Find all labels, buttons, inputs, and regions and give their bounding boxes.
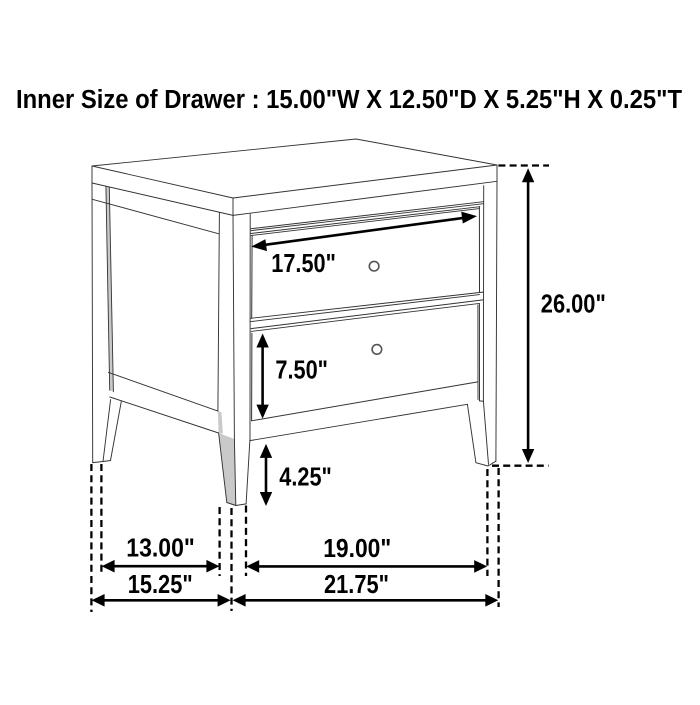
svg-text:4.25": 4.25" <box>279 464 332 492</box>
svg-text:26.00": 26.00" <box>541 291 606 319</box>
svg-text:7.50": 7.50" <box>275 357 328 385</box>
svg-text:13.00": 13.00" <box>126 534 195 562</box>
svg-text:21.75": 21.75" <box>324 571 389 599</box>
svg-text:19.00": 19.00" <box>323 535 391 563</box>
svg-text:15.25": 15.25" <box>128 571 193 599</box>
svg-text:17.50": 17.50" <box>271 250 336 278</box>
svg-text:Inner Size of Drawer : 15.00"W: Inner Size of Drawer : 15.00"W X 12.50"D… <box>16 84 682 114</box>
